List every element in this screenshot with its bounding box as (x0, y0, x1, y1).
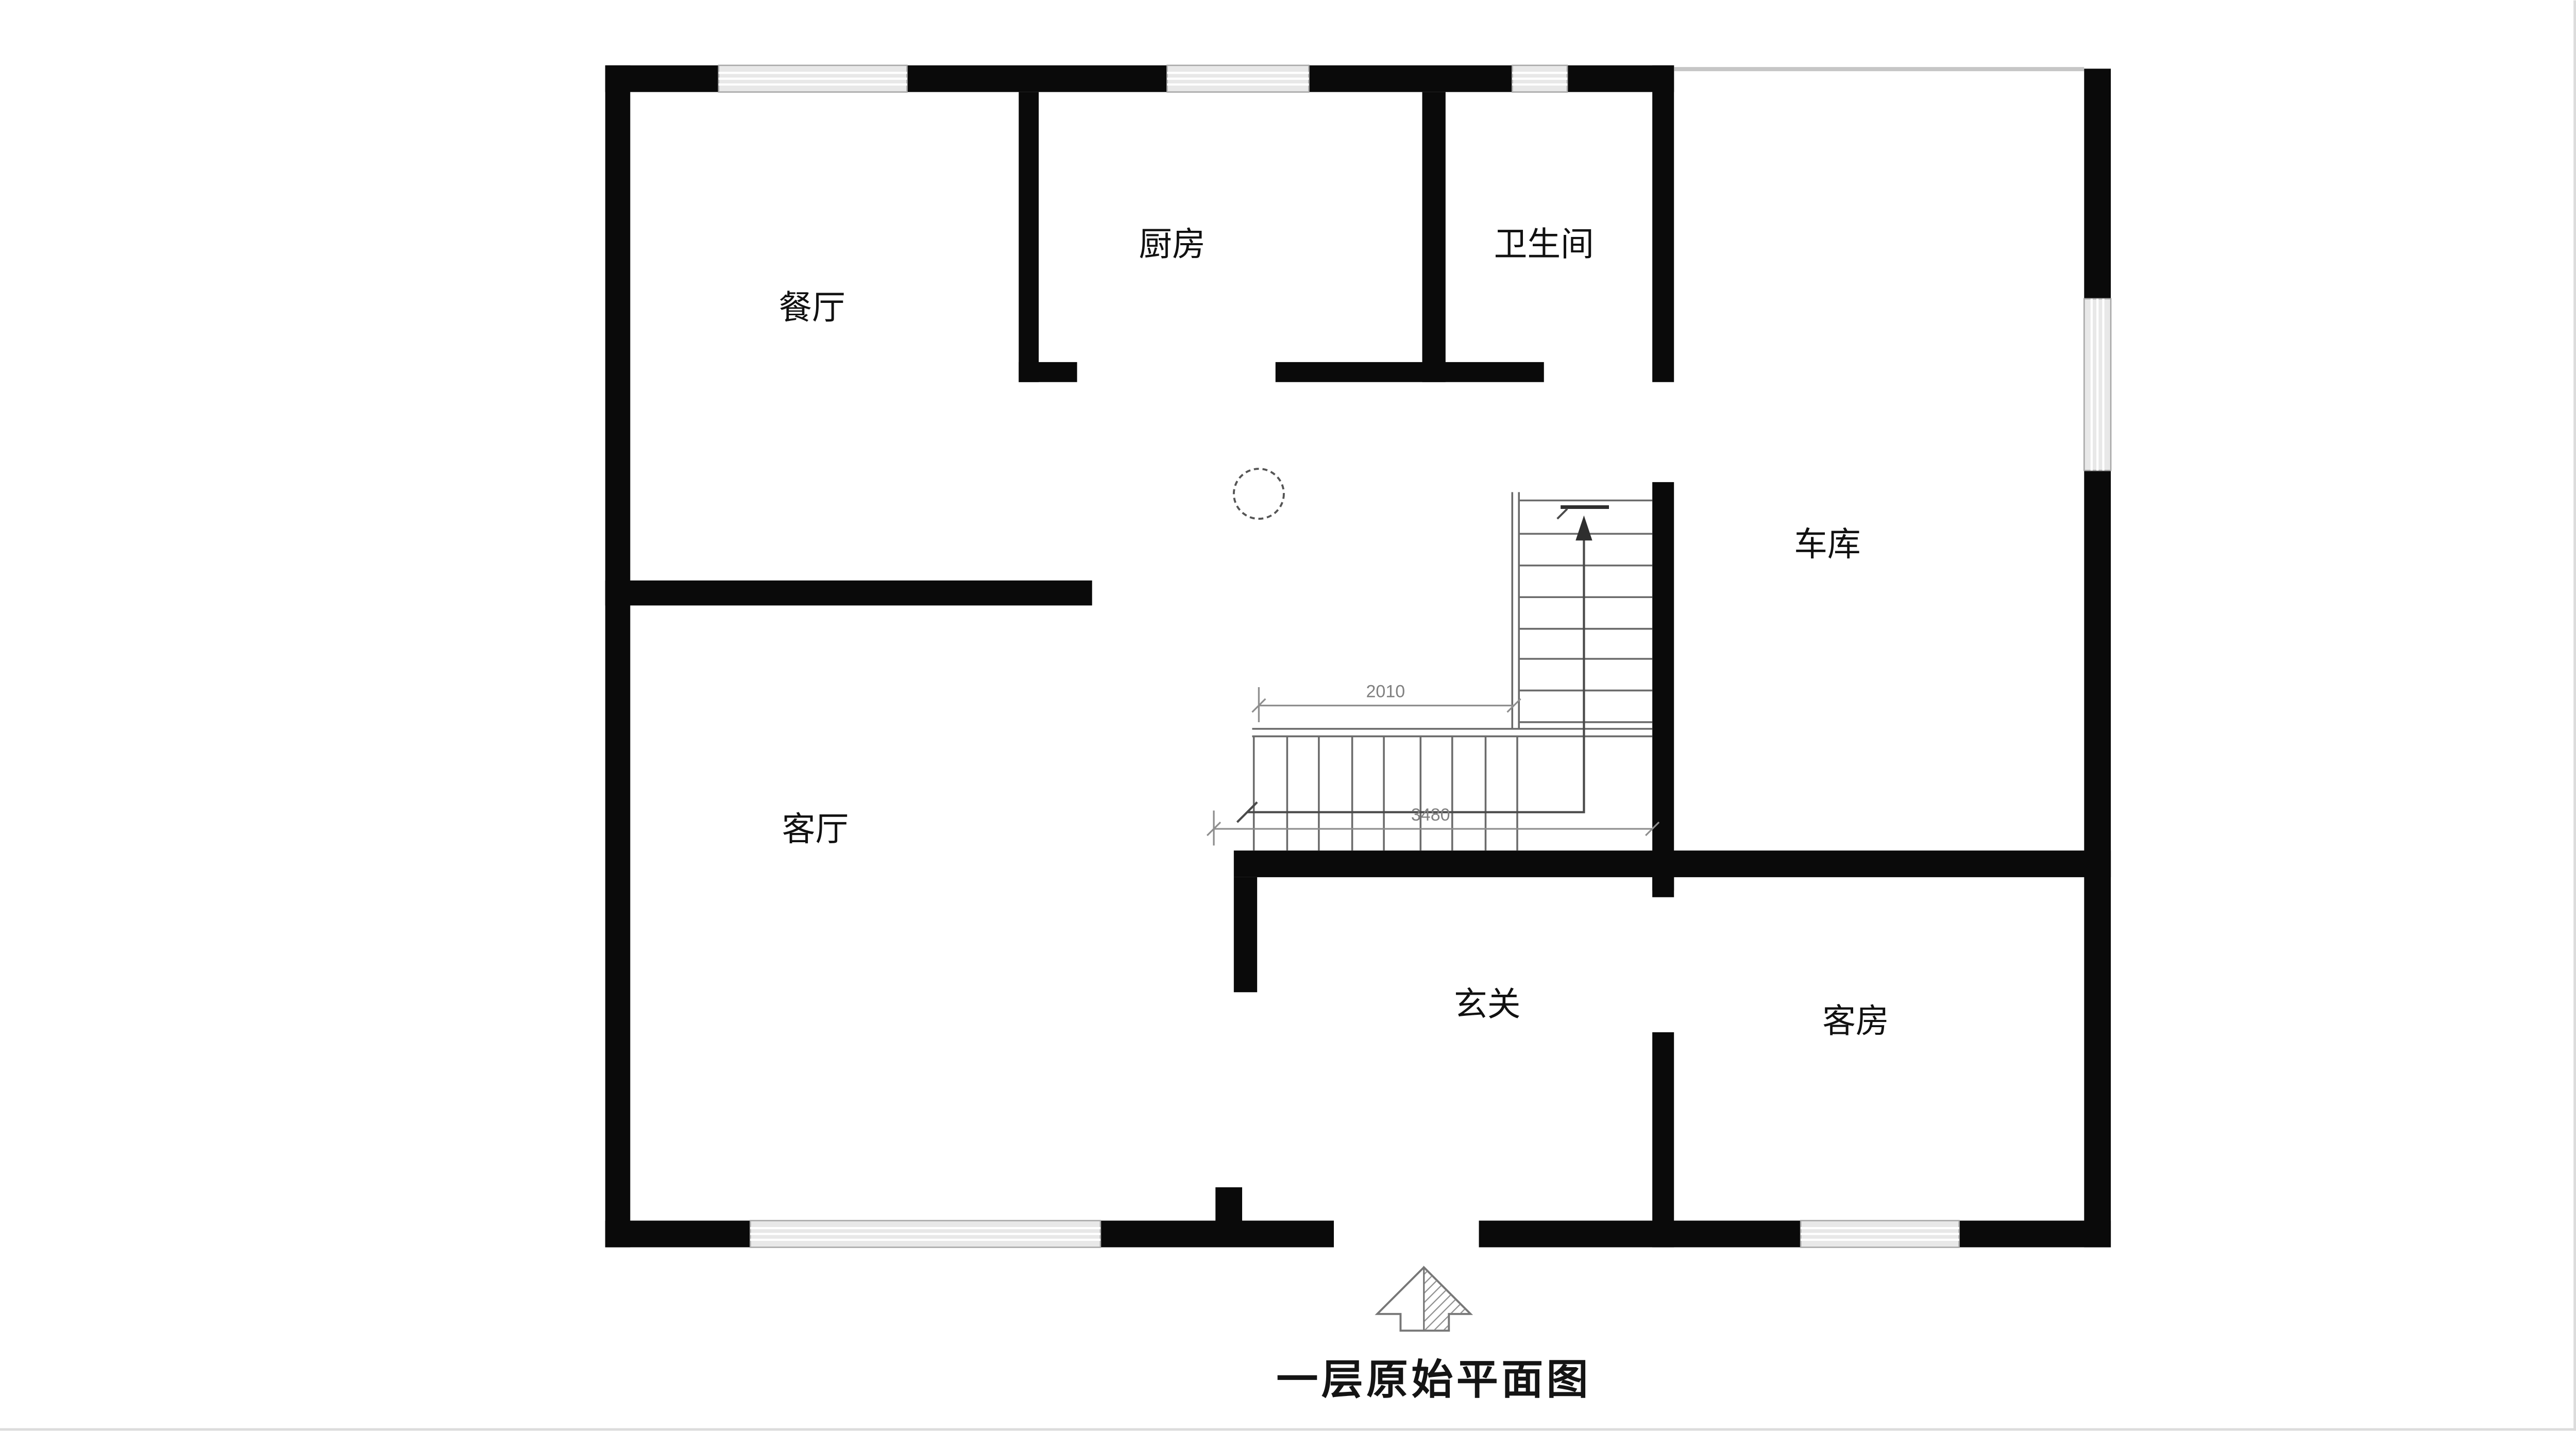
room-label-foyer: 玄关 (1454, 986, 1520, 1023)
wall-bathroom-right (1652, 65, 1674, 382)
wall-kitchen-bottom (1276, 362, 1544, 382)
plan-title: 一层原始平面图 (1276, 1357, 1591, 1403)
room-label-guest: 客房 (1822, 1002, 1889, 1040)
window-top-dining (719, 65, 907, 92)
garage-open-edge-line (1674, 67, 2084, 71)
window-right-garage (2084, 299, 2111, 470)
wall-foyer-guest-divider (1652, 1032, 1674, 1247)
window-top-bathroom (1512, 65, 1567, 92)
screen-right-border (2573, 1, 2576, 1431)
wall-bottom-seg-4 (1959, 1221, 2111, 1248)
floor-plan-canvas: 2010 3480 餐厅 厨房 卫生间 车库 客厅 玄关 客房 一层原始平面图 (0, 0, 2576, 1431)
wall-left (605, 65, 631, 1247)
entry-door-stub (1215, 1187, 1242, 1224)
wall-bottom-seg-2 (1100, 1221, 1334, 1248)
wall-living-dining-divider (605, 581, 1092, 606)
room-label-bathroom: 卫生间 (1494, 226, 1594, 263)
room-label-living: 客厅 (782, 811, 849, 848)
wall-bottom-seg-3 (1479, 1221, 1801, 1248)
wall-hall-left-stub (1234, 877, 1257, 992)
wall-top-seg-3 (1309, 65, 1512, 92)
dim-label-3480: 3480 (1411, 805, 1450, 825)
wall-bottom-seg-1 (605, 1221, 751, 1248)
wall-dining-kitchen-foot (1019, 362, 1077, 382)
dim-label-2010: 2010 (1366, 682, 1405, 701)
window-top-kitchen (1167, 65, 1309, 92)
wall-top-seg-2 (907, 65, 1167, 92)
wall-top-seg-1 (605, 65, 719, 92)
wall-right-seg-1 (2084, 69, 2111, 299)
wall-stair-garage (1652, 482, 1674, 891)
wall-kitchen-bathroom-divider (1422, 92, 1446, 382)
room-label-garage: 车库 (1794, 525, 1860, 563)
window-bottom-living (750, 1221, 1100, 1248)
screen-bottom-border (0, 1428, 2576, 1430)
wall-foyer-guest-stub (1652, 877, 1674, 897)
page-background (0, 1, 2576, 1431)
wall-dining-kitchen-divider (1019, 92, 1039, 382)
room-label-dining: 餐厅 (778, 289, 845, 326)
wall-hall-bottom (1234, 850, 2111, 877)
window-bottom-guest (1801, 1221, 1959, 1248)
room-label-kitchen: 厨房 (1139, 226, 1205, 263)
